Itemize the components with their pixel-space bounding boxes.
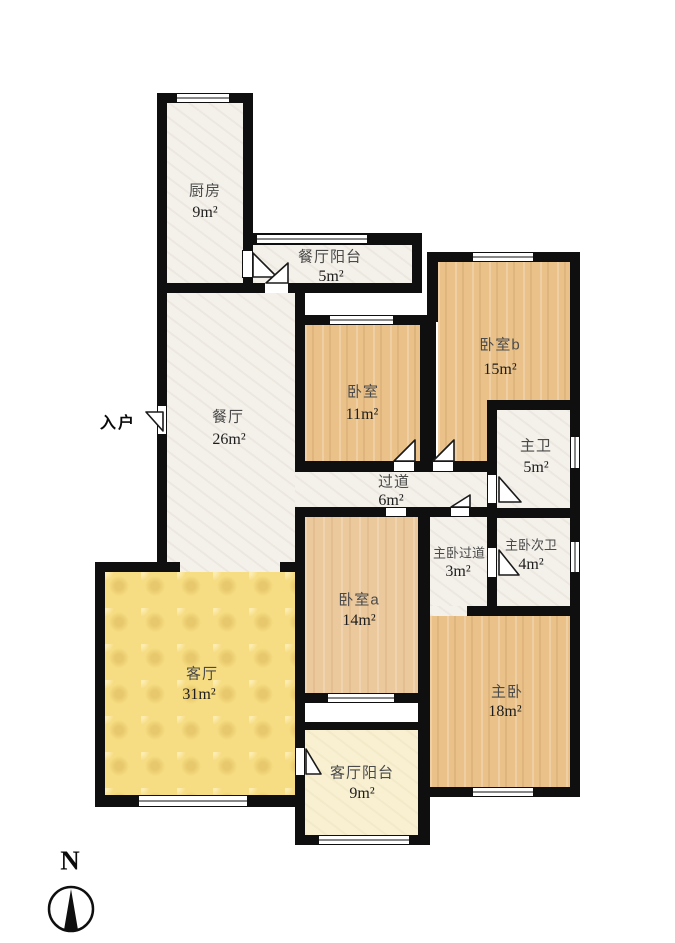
north-label: N [60, 846, 80, 877]
wall [157, 435, 167, 572]
room-label-master: 主卧 [491, 681, 523, 702]
compass-needle-icon [64, 889, 78, 930]
wall [157, 283, 265, 293]
room-label-living-balcony: 客厅阳台 [330, 762, 394, 783]
wall [288, 283, 422, 293]
wall [420, 315, 436, 472]
room-area-master-bath: 5m² [523, 459, 548, 477]
window [570, 541, 580, 573]
window [570, 436, 580, 469]
room-area-living: 31m² [182, 686, 215, 704]
wall [280, 562, 305, 572]
living-balcony-floor [305, 730, 418, 835]
window [327, 693, 395, 703]
room-label-dining-balcony: 餐厅阳台 [298, 246, 362, 267]
room-area-kitchen: 9m² [192, 204, 217, 222]
window [472, 787, 534, 797]
room-area-master-hall: 3m² [445, 563, 470, 581]
wall [295, 507, 305, 748]
balcony-door-leaf [295, 747, 305, 776]
room-label-bedroom: 卧室 [347, 381, 379, 402]
floor-plan: 厨房 9m² 餐厅阳台 5m² 卧室b 15m² 卧室 11m² 餐厅 26m²… [0, 0, 675, 943]
room-area-living-balcony: 9m² [349, 785, 374, 803]
room-label-living: 客厅 [186, 663, 218, 684]
master-floor [430, 616, 570, 787]
wall [415, 461, 432, 472]
room-area-dining: 26m² [212, 431, 245, 449]
wall [487, 577, 497, 606]
room-area-dining-balcony: 5m² [318, 268, 343, 286]
entry-door-leaf [157, 405, 167, 435]
room-label-master-hall: 主卧过道 [433, 543, 485, 562]
wall [427, 252, 438, 322]
master-entry-floor [430, 606, 467, 616]
room-area-bedroom-b: 15m² [483, 361, 516, 379]
second-bath-door-leaf [487, 547, 497, 578]
entrance-label: 入户 [100, 409, 136, 433]
wall [243, 93, 253, 251]
kitchen-door-leaf [242, 250, 253, 278]
room-area-bedroom-a: 14m² [342, 612, 375, 630]
wall [454, 461, 497, 472]
wall [487, 400, 580, 410]
room-area-hallway: 6m² [378, 492, 403, 510]
living-floor [105, 572, 295, 795]
room-label-bedroom-a: 卧室a [338, 589, 379, 610]
window [138, 795, 248, 807]
window [176, 93, 230, 103]
window [256, 234, 368, 244]
wall [157, 93, 167, 405]
room-label-hallway: 过道 [378, 471, 410, 492]
room-label-kitchen: 厨房 [189, 180, 221, 201]
room-area-master: 18m² [488, 703, 521, 721]
room-label-dining: 餐厅 [212, 406, 244, 427]
master-bath-door-leaf [487, 474, 497, 504]
wall [95, 562, 105, 807]
wall [295, 283, 305, 472]
compass-circle [49, 887, 93, 931]
room-area-master-second-bath: 4m² [518, 556, 543, 574]
wall [295, 507, 385, 517]
window [318, 835, 410, 845]
master-hall-floor [430, 517, 487, 606]
room-label-master-second-bath: 主卧次卫 [505, 535, 557, 554]
wall [487, 508, 580, 518]
window [329, 315, 394, 325]
wall [305, 722, 418, 730]
window [472, 252, 534, 262]
wall [467, 606, 580, 616]
bedroom-b-door-leaf [432, 461, 454, 472]
wall [407, 507, 450, 517]
wall [95, 562, 180, 572]
room-label-bedroom-b: 卧室b [479, 334, 520, 355]
room-label-master-bath: 主卫 [520, 435, 552, 456]
wall [570, 252, 580, 797]
master-hall-door-leaf [450, 507, 470, 517]
room-area-bedroom: 11m² [346, 406, 379, 424]
